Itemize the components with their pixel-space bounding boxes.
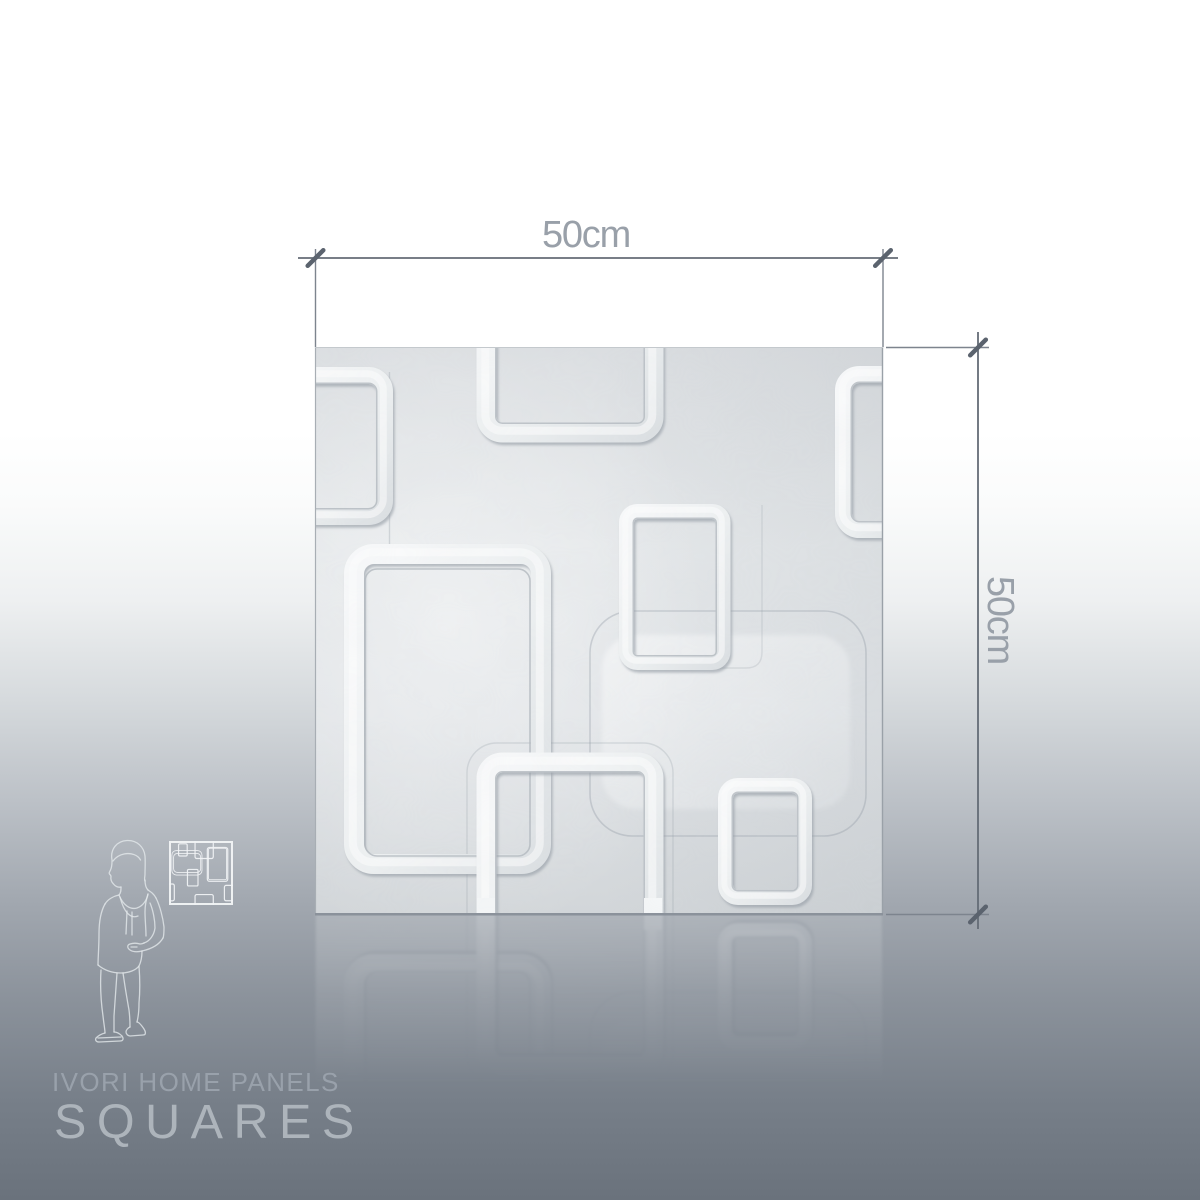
svg-text:50cm: 50cm	[979, 576, 1021, 664]
svg-text:SQUARES: SQUARES	[54, 1095, 365, 1149]
svg-text:IVORI HOME PANELS: IVORI HOME PANELS	[52, 1067, 340, 1097]
svg-text:50cm: 50cm	[542, 214, 630, 256]
